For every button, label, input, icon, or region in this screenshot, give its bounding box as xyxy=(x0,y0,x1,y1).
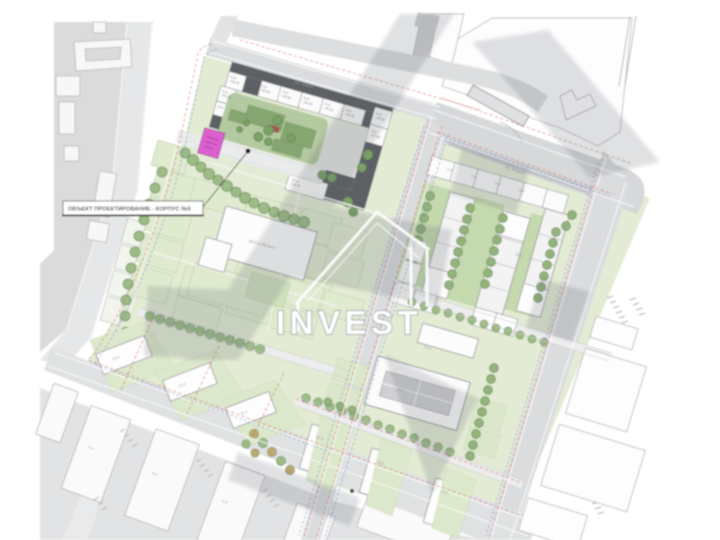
svg-text:INVEST: INVEST xyxy=(276,304,422,341)
svg-text:ОБЪЕКТ ПРОЕКТИРОВАНИЕ - КОРПУС: ОБЪЕКТ ПРОЕКТИРОВАНИЕ - КОРПУС №5 xyxy=(68,207,192,213)
